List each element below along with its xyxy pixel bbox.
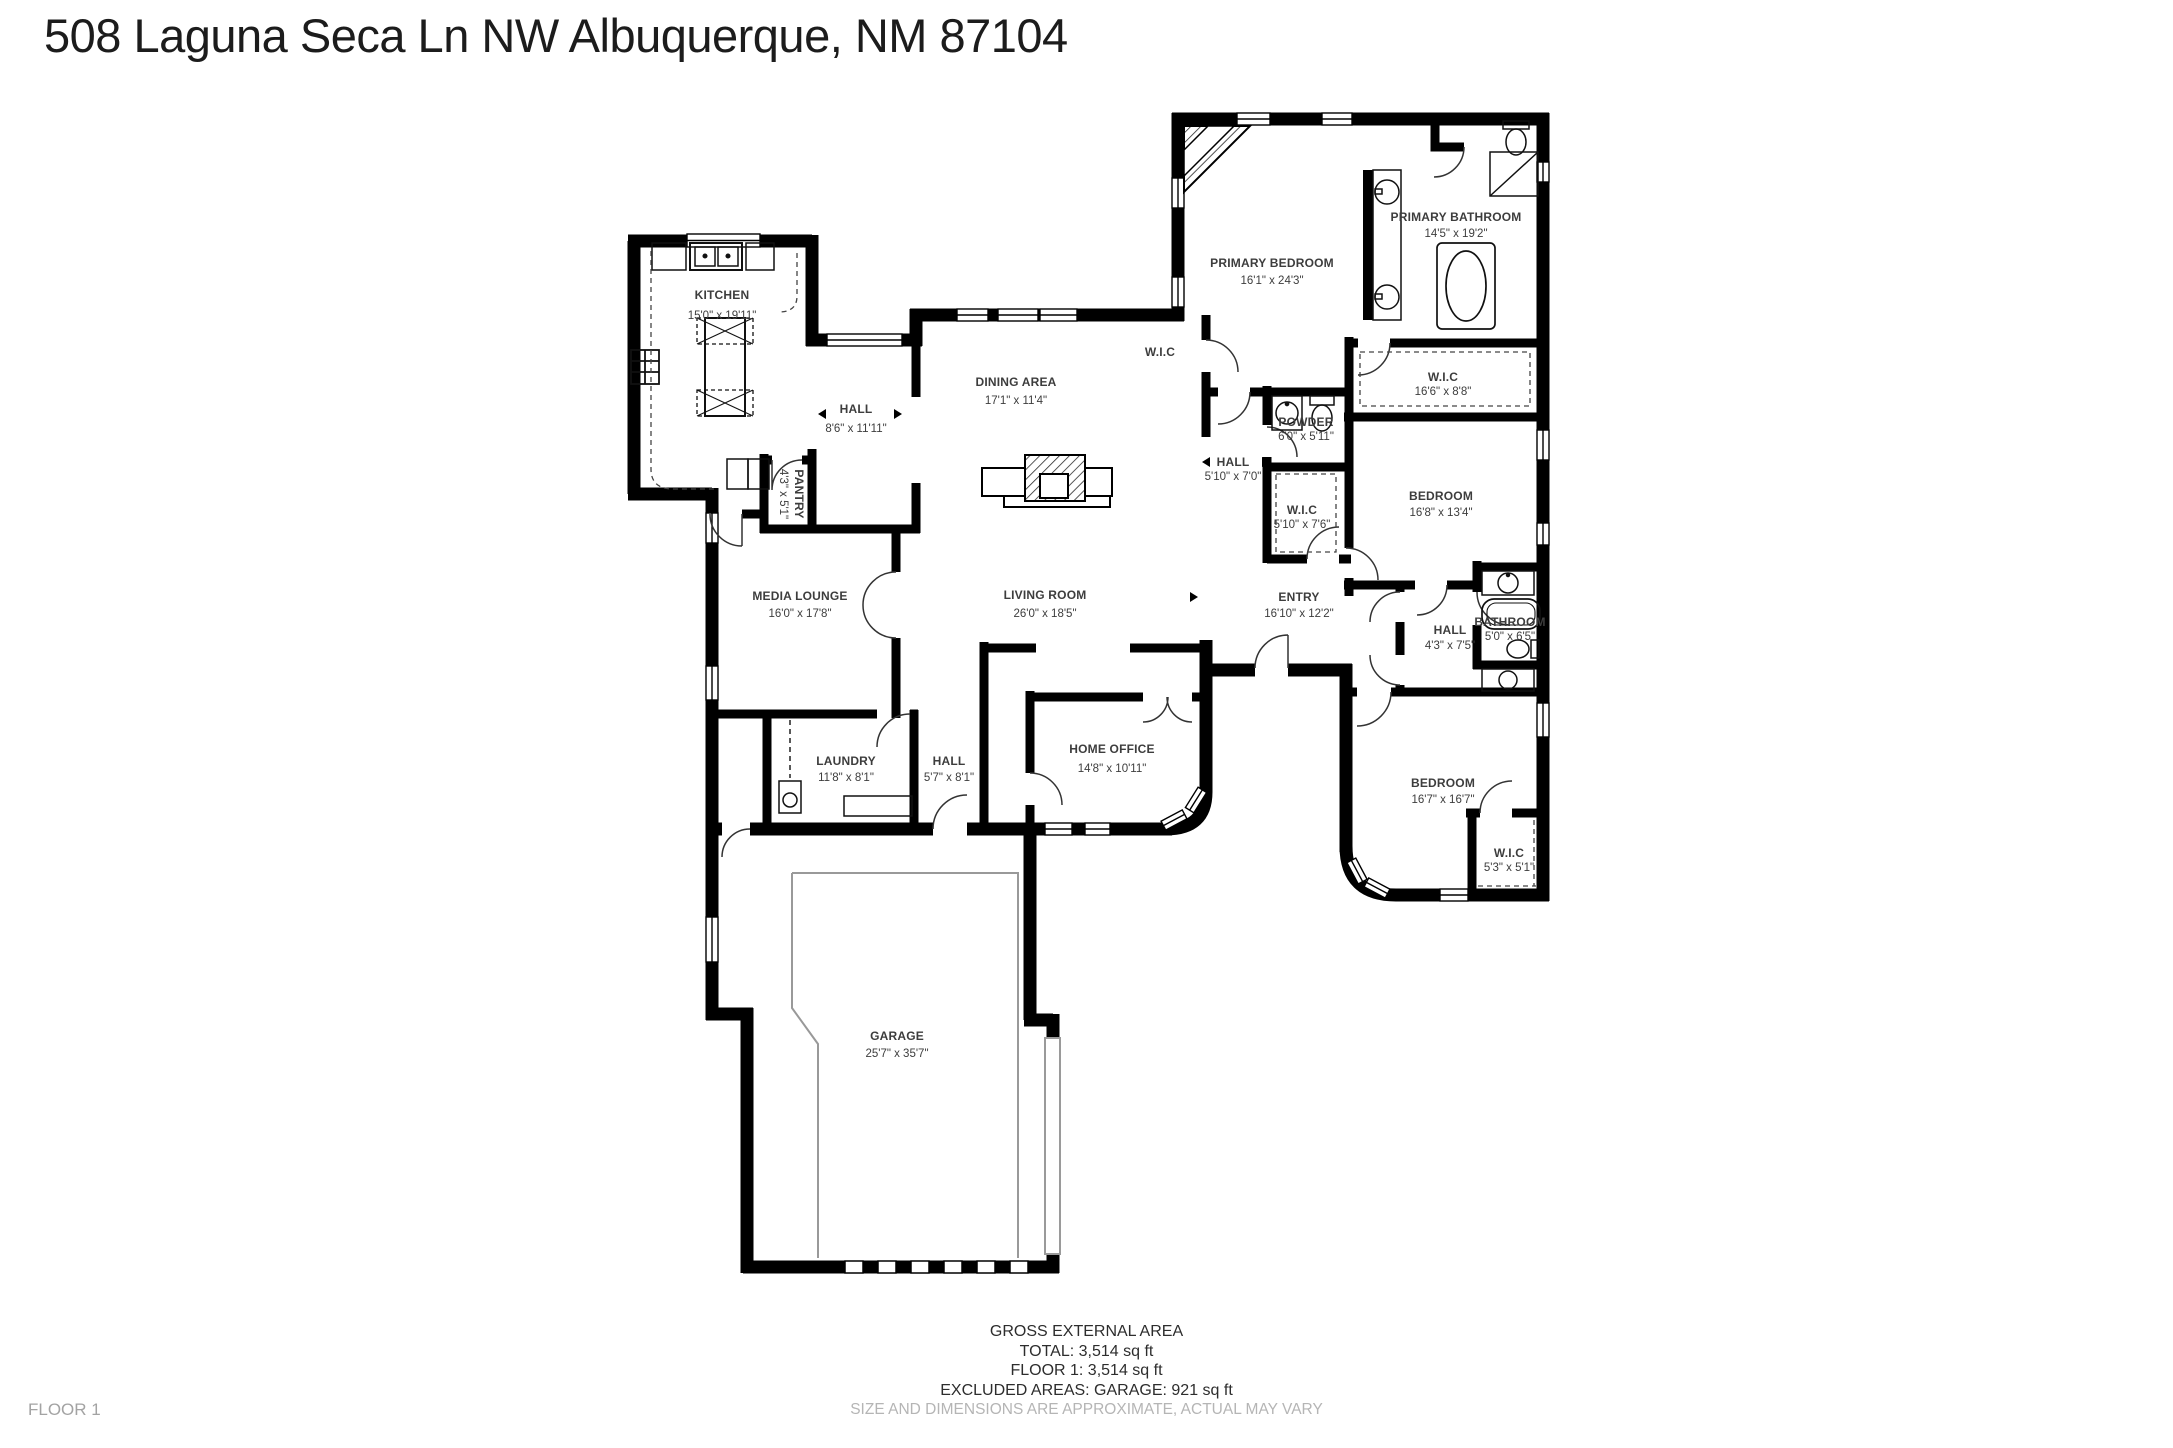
room-label-wic-primary: W.I.C16'6" x 8'8" bbox=[1415, 370, 1472, 398]
svg-text:PANTRY: PANTRY bbox=[792, 469, 806, 518]
svg-text:5'10" x 7'0": 5'10" x 7'0" bbox=[1205, 471, 1262, 483]
svg-text:W.I.C: W.I.C bbox=[1428, 370, 1458, 384]
svg-text:HALL: HALL bbox=[840, 402, 873, 416]
floor-label: FLOOR 1 bbox=[28, 1400, 101, 1420]
laundry-counter bbox=[844, 796, 912, 816]
room-label-pantry: PANTRY4'3" x 5'1" bbox=[777, 469, 806, 519]
svg-text:LAUNDRY: LAUNDRY bbox=[816, 754, 876, 768]
vanity-wall bbox=[1363, 170, 1373, 320]
svg-text:W.I.C: W.I.C bbox=[1145, 345, 1175, 359]
svg-text:HALL: HALL bbox=[1434, 623, 1467, 637]
svg-text:ENTRY: ENTRY bbox=[1278, 590, 1319, 604]
svg-text:DINING AREA: DINING AREA bbox=[975, 375, 1056, 389]
room-label-wic-dining: W.I.C bbox=[1145, 345, 1175, 359]
svg-text:BATHROOM: BATHROOM bbox=[1474, 615, 1545, 629]
svg-text:15'0" x 19'11": 15'0" x 19'11" bbox=[688, 310, 757, 322]
summary-line: FLOOR 1: 3,514 sq ft bbox=[0, 1361, 2173, 1381]
primary-vanity bbox=[1373, 170, 1401, 320]
svg-text:14'8" x 10'11": 14'8" x 10'11" bbox=[1078, 763, 1147, 775]
svg-text:14'5" x 19'2": 14'5" x 19'2" bbox=[1424, 228, 1487, 240]
room-label-dining: DINING AREA17'1" x 11'4" bbox=[975, 375, 1056, 407]
svg-text:5'7" x 8'1": 5'7" x 8'1" bbox=[924, 772, 974, 784]
svg-text:PRIMARY BEDROOM: PRIMARY BEDROOM bbox=[1210, 256, 1334, 270]
window bbox=[687, 234, 760, 247]
svg-text:KITCHEN: KITCHEN bbox=[695, 288, 750, 302]
window bbox=[706, 917, 718, 962]
summary-line: TOTAL: 3,514 sq ft bbox=[0, 1342, 2173, 1362]
window bbox=[1172, 178, 1184, 208]
room-label-hall-powder: HALL5'10" x 7'0" bbox=[1205, 455, 1262, 483]
window bbox=[706, 513, 718, 543]
room-label-wic-bedroom2: W.I.C5'3" x 5'1" bbox=[1484, 846, 1534, 874]
svg-text:17'1" x 11'4": 17'1" x 11'4" bbox=[985, 395, 1047, 407]
svg-text:5'10" x 7'6": 5'10" x 7'6" bbox=[1274, 519, 1331, 531]
svg-text:BEDROOM: BEDROOM bbox=[1409, 489, 1473, 503]
floor-plan: KITCHEN15'0" x 19'11" HALL8'6" x 11'11" … bbox=[0, 0, 2173, 1448]
svg-text:16'7" x 16'7": 16'7" x 16'7" bbox=[1411, 794, 1474, 806]
window bbox=[957, 309, 988, 321]
window bbox=[1237, 113, 1270, 125]
room-label-bedroom-1: BEDROOM16'8" x 13'4" bbox=[1409, 489, 1473, 519]
room-label-hall-laundry: HALL5'7" x 8'1" bbox=[924, 754, 974, 784]
window bbox=[1537, 162, 1549, 182]
svg-text:16'1" x 24'3": 16'1" x 24'3" bbox=[1240, 275, 1303, 287]
kitchen-island bbox=[697, 318, 753, 416]
primary-toilet bbox=[1503, 121, 1529, 155]
svg-text:16'0" x 17'8": 16'0" x 17'8" bbox=[768, 608, 831, 620]
svg-text:LIVING ROOM: LIVING ROOM bbox=[1004, 588, 1087, 602]
corner-fireplace bbox=[1184, 126, 1250, 192]
svg-text:PRIMARY BATHROOM: PRIMARY BATHROOM bbox=[1391, 210, 1522, 224]
summary-line: GROSS EXTERNAL AREA bbox=[0, 1322, 2173, 1342]
room-label-wic-entry: W.I.C5'10" x 7'6" bbox=[1274, 503, 1331, 531]
window bbox=[1172, 277, 1184, 307]
svg-text:5'3" x 5'1": 5'3" x 5'1" bbox=[1484, 862, 1534, 874]
window bbox=[1322, 113, 1352, 125]
svg-text:25'7" x 35'7": 25'7" x 35'7" bbox=[865, 1048, 928, 1060]
room-label-hall-kitchen: HALL8'6" x 11'11" bbox=[825, 402, 886, 435]
room-label-primary-bedroom: PRIMARY BEDROOM16'1" x 24'3" bbox=[1210, 256, 1334, 287]
svg-text:4'3" x 5'1": 4'3" x 5'1" bbox=[777, 469, 789, 519]
window bbox=[706, 666, 718, 700]
laundry-appliance bbox=[779, 781, 801, 813]
svg-text:16'8" x 13'4": 16'8" x 13'4" bbox=[1409, 507, 1472, 519]
window bbox=[1045, 823, 1072, 835]
room-label-kitchen: KITCHEN15'0" x 19'11" bbox=[688, 288, 757, 322]
room-label-laundry: LAUNDRY11'8" x 8'1" bbox=[816, 754, 876, 784]
svg-text:4'3" x 7'5": 4'3" x 7'5" bbox=[1425, 640, 1475, 652]
disclaimer: SIZE AND DIMENSIONS ARE APPROXIMATE, ACT… bbox=[0, 1400, 2173, 1420]
room-label-hall-bedroom: HALL4'3" x 7'5" bbox=[1425, 623, 1475, 652]
svg-text:5'0" x 6'5": 5'0" x 6'5" bbox=[1485, 631, 1535, 643]
window bbox=[1537, 523, 1549, 545]
svg-text:HOME OFFICE: HOME OFFICE bbox=[1069, 742, 1155, 756]
window bbox=[1040, 309, 1077, 321]
svg-text:W.I.C: W.I.C bbox=[1287, 503, 1317, 517]
window bbox=[1537, 703, 1549, 737]
svg-text:W.I.C: W.I.C bbox=[1494, 846, 1524, 860]
svg-text:GARAGE: GARAGE bbox=[870, 1029, 924, 1043]
svg-text:26'0" x 18'5": 26'0" x 18'5" bbox=[1013, 608, 1076, 620]
primary-shower bbox=[1490, 152, 1538, 196]
room-label-living: LIVING ROOM26'0" x 18'5" bbox=[1004, 588, 1087, 620]
room-label-bedroom-2: BEDROOM16'7" x 16'7" bbox=[1411, 776, 1475, 806]
dining-fireplace bbox=[982, 455, 1112, 507]
svg-text:6'0" x 5'11": 6'0" x 5'11" bbox=[1278, 431, 1334, 443]
window bbox=[1537, 430, 1549, 460]
svg-text:16'10" x 12'2": 16'10" x 12'2" bbox=[1264, 608, 1333, 620]
window bbox=[827, 334, 902, 346]
room-label-primary-bathroom: PRIMARY BATHROOM14'5" x 19'2" bbox=[1391, 210, 1522, 240]
bath-sink bbox=[1482, 571, 1534, 595]
summary-line: EXCLUDED AREAS: GARAGE: 921 sq ft bbox=[0, 1381, 2173, 1401]
garage-side-door bbox=[1045, 1038, 1060, 1254]
svg-text:HALL: HALL bbox=[933, 754, 966, 768]
window bbox=[998, 309, 1038, 321]
svg-text:8'6" x 11'11": 8'6" x 11'11" bbox=[825, 423, 886, 435]
primary-tub bbox=[1437, 243, 1495, 329]
counter-outline bbox=[779, 253, 797, 312]
area-summary: GROSS EXTERNAL AREA TOTAL: 3,514 sq ft F… bbox=[0, 1322, 2173, 1420]
room-label-entry: ENTRY16'10" x 12'2" bbox=[1264, 590, 1333, 620]
room-label-media: MEDIA LOUNGE16'0" x 17'8" bbox=[752, 589, 847, 620]
svg-text:BEDROOM: BEDROOM bbox=[1411, 776, 1475, 790]
svg-text:POWDER: POWDER bbox=[1278, 415, 1333, 429]
garage-details bbox=[792, 873, 1060, 1273]
room-label-home-office: HOME OFFICE14'8" x 10'11" bbox=[1069, 742, 1155, 775]
room-label-garage: GARAGE25'7" x 35'7" bbox=[865, 1029, 928, 1060]
svg-text:11'8" x 8'1": 11'8" x 8'1" bbox=[818, 772, 874, 784]
window bbox=[1085, 823, 1110, 835]
svg-text:MEDIA LOUNGE: MEDIA LOUNGE bbox=[752, 589, 847, 603]
window bbox=[1440, 889, 1468, 901]
svg-text:HALL: HALL bbox=[1217, 455, 1250, 469]
room-label-powder: POWDER6'0" x 5'11" bbox=[1278, 415, 1334, 443]
svg-text:16'6" x 8'8": 16'6" x 8'8" bbox=[1415, 386, 1472, 398]
